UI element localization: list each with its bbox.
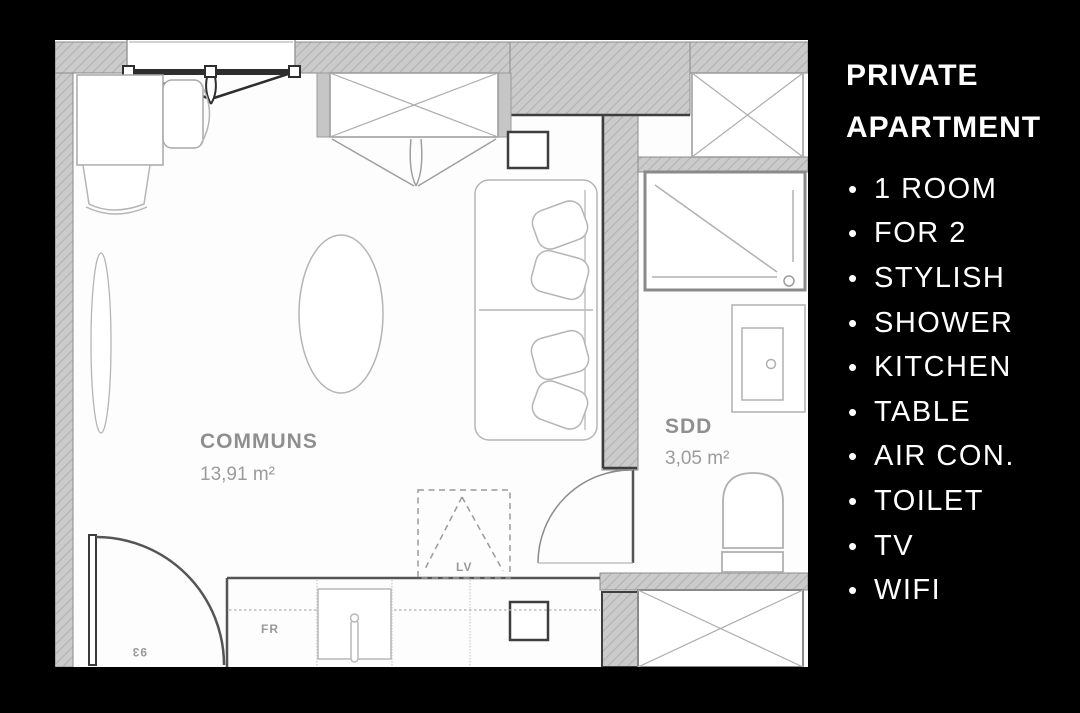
panel-title-line2: APARTMENT: [846, 102, 1041, 154]
room-area-communs: 13,91 m²: [200, 464, 275, 485]
bullet-icon: •: [848, 263, 874, 294]
shower: [645, 172, 805, 290]
floor-plan: FR LV 93 COMMUNS 13,91 m² SDD 3,05 m²: [55, 40, 808, 667]
bullet-icon: •: [848, 174, 874, 205]
feature-item: •AIR CON.: [848, 435, 1015, 480]
feature-item: •FOR 2: [848, 212, 1015, 257]
table: [299, 235, 383, 393]
room-area-sdd: 3,05 m²: [665, 448, 729, 469]
info-panel: PRIVATE APARTMENT •1 ROOM •FOR 2 •STYLIS…: [808, 0, 1080, 713]
room-name-communs: COMMUNS: [200, 430, 318, 453]
feature-item: •TOILET: [848, 479, 1015, 524]
feature-label: FOR 2: [874, 217, 967, 250]
shower-drain: [784, 276, 794, 286]
feature-item: •SHOWER: [848, 301, 1015, 346]
feature-label: WIFI: [874, 574, 941, 607]
listing-image: FR LV 93 COMMUNS 13,91 m² SDD 3,05 m²: [0, 0, 1080, 713]
feature-item: •TABLE: [848, 390, 1015, 435]
dishwasher-label: LV: [456, 560, 472, 574]
floor-plan-svg: FR LV 93 COMMUNS 13,91 m² SDD 3,05 m²: [55, 40, 808, 667]
bullet-icon: •: [848, 486, 874, 517]
bullet-icon: •: [848, 575, 874, 606]
room-name-sdd: SDD: [665, 415, 712, 438]
washbasin: [732, 305, 805, 412]
bed: [475, 180, 597, 440]
fridge-label: FR: [261, 622, 279, 636]
panel-title-line1: PRIVATE: [846, 50, 1041, 102]
feature-item: •WIFI: [848, 568, 1015, 613]
toilet: [722, 473, 783, 572]
bullet-icon: •: [848, 218, 874, 249]
bullet-icon: •: [848, 441, 874, 472]
feature-item: •1 ROOM: [848, 167, 1015, 212]
feature-list: •1 ROOM •FOR 2 •STYLISH •SHOWER •KITCHEN…: [848, 167, 1015, 613]
feature-item: •TV: [848, 524, 1015, 569]
feature-item: •STYLISH: [848, 256, 1015, 301]
feature-label: 1 ROOM: [874, 173, 997, 206]
vent-shaft: [692, 73, 803, 157]
bullet-icon: •: [848, 531, 874, 562]
feature-label: STYLISH: [874, 262, 1005, 295]
bullet-icon: •: [848, 397, 874, 428]
feature-label: TV: [874, 530, 914, 563]
bullet-icon: •: [848, 352, 874, 383]
storage-box: [638, 590, 803, 667]
armchair: [83, 165, 150, 210]
feature-label: SHOWER: [874, 307, 1014, 340]
feature-label: TOILET: [874, 485, 984, 518]
panel-title: PRIVATE APARTMENT: [846, 50, 1041, 154]
desk-chair: [163, 80, 203, 148]
feature-item: •KITCHEN: [848, 345, 1015, 390]
hinge-icon: [289, 66, 300, 77]
door-width-label: 93: [132, 645, 147, 659]
kitchen-sink: [318, 589, 391, 662]
bullet-icon: •: [848, 308, 874, 339]
feature-label: AIR CON.: [874, 440, 1015, 473]
column: [508, 132, 548, 168]
wall-mirror: [91, 253, 111, 433]
feature-label: KITCHEN: [874, 351, 1012, 384]
hinge-icon: [205, 66, 216, 77]
feature-label: TABLE: [874, 396, 971, 429]
column: [510, 602, 548, 640]
